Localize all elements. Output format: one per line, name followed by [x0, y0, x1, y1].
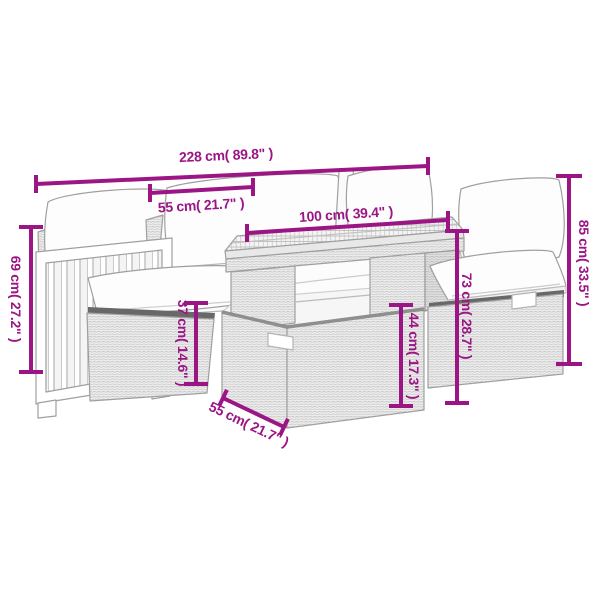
dimension-label-armrest-height: 69 cm( 27.2" ): [8, 256, 24, 343]
table-base-front-face: [287, 309, 424, 428]
furniture-line-art: [0, 0, 600, 600]
product-dimension-diagram: 228 cm( 89.8" ) 55 cm( 21.7" ) 100 cm( 3…: [0, 0, 600, 600]
sofa-foot: [38, 400, 56, 418]
ottoman-label-tag: [512, 292, 536, 309]
dimension-label-table-base-height: 44 cm( 17.3" ): [406, 313, 422, 400]
ottoman-body-wicker: [428, 294, 563, 388]
dimension-label-backrest-height: 85 cm( 33.5" ): [576, 220, 592, 307]
dimension-label-seat-height: 37 cm( 14.6" ): [175, 300, 191, 387]
ottoman: [428, 250, 566, 388]
dimension-label-table-height: 73 cm( 28.7" ): [459, 273, 475, 360]
